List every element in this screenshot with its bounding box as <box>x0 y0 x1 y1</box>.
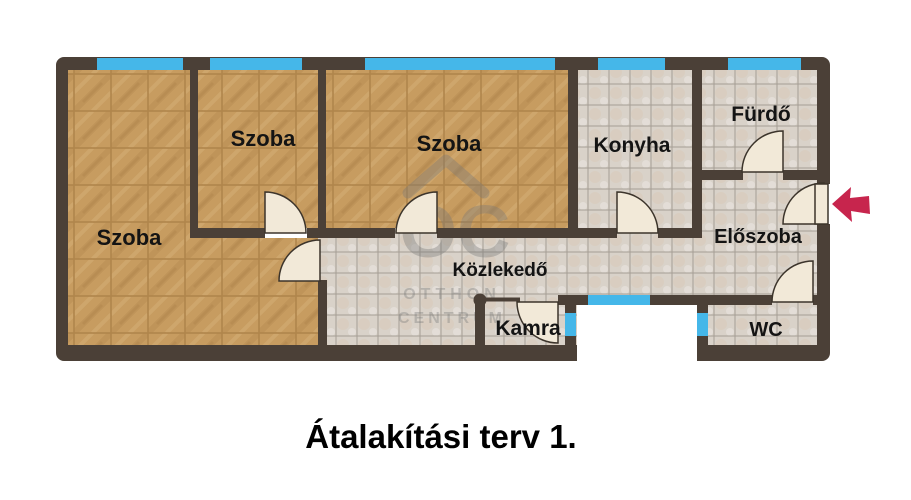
wall-furdo-bottom-right <box>783 170 817 180</box>
window-szoba-middle <box>210 58 302 70</box>
wall-corridor-top-2 <box>307 228 395 238</box>
wall-szoba2-szoba3 <box>318 70 326 228</box>
wall-wc-top <box>650 295 772 305</box>
label-konyha: Konyha <box>593 134 670 157</box>
plan-title: Átalakítási terv 1. <box>305 418 576 455</box>
wall-furdo-bottom-left <box>702 170 743 180</box>
wall-post <box>474 294 487 307</box>
label-szoba-middle: Szoba <box>231 126 297 151</box>
wall-konyha-furdo <box>692 70 702 228</box>
window-szoba-large <box>97 58 183 70</box>
label-kamra: Kamra <box>495 317 561 340</box>
label-kozlekedo: Közlekedő <box>452 260 547 281</box>
window-notch-left <box>565 313 576 336</box>
floor-plan-page: OC OTTHON CENTRUM <box>0 0 911 500</box>
window-notch-right <box>697 313 708 336</box>
entrance-arrow-icon <box>832 187 870 222</box>
wall-corridor-top-4 <box>658 228 702 238</box>
watermark-line2: CENTRUM <box>398 310 506 327</box>
window-konyha <box>598 58 665 70</box>
window-szoba-right <box>365 58 555 70</box>
label-wc: WC <box>749 319 782 341</box>
door-entrance-leaf <box>815 184 828 224</box>
wall-corridor-top-3 <box>437 228 617 238</box>
wall-szoba1-corridor <box>318 280 327 345</box>
label-szoba-large: Szoba <box>97 225 163 250</box>
label-furdo: Fürdő <box>731 103 790 126</box>
wall-corridor-top-1 <box>198 228 265 238</box>
label-eloszoba: Előszoba <box>714 226 803 248</box>
floor-plan-drawing: OC OTTHON CENTRUM <box>0 0 911 500</box>
label-szoba-right: Szoba <box>417 131 483 156</box>
window-notch-top <box>588 295 650 305</box>
courtyard-notch <box>577 305 697 362</box>
room-szoba-large-floor <box>68 70 190 345</box>
window-furdo <box>728 58 801 70</box>
wall-szoba1-szoba2 <box>190 70 198 238</box>
wall-szoba3-konyha <box>568 70 578 228</box>
